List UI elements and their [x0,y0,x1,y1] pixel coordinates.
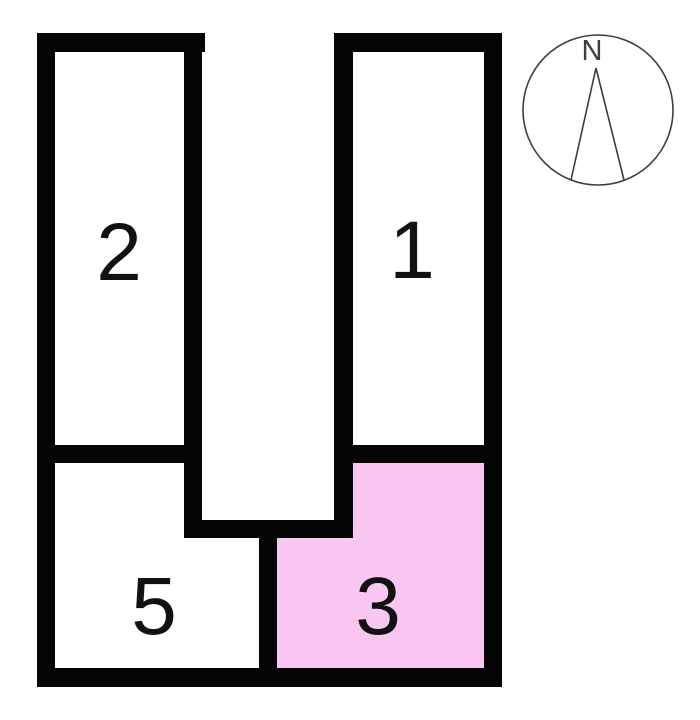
room-3-label: 3 [355,561,401,652]
room-5-label: 5 [131,561,177,652]
wall-outer-left [37,33,55,687]
wall-outer-right [484,33,502,687]
floor-plan-canvas: 2 1 5 3 N [0,0,700,720]
compass-north-label: N [582,35,603,67]
wall-room-1-3-divider [334,445,502,463]
room-1-label: 1 [389,205,435,296]
wall-top-room-2 [37,33,205,52]
wall-outer-bottom [37,668,502,687]
wall-top-room-1 [334,33,502,52]
room-2-label: 2 [96,207,142,298]
wall-room-5-3-divider [259,520,277,687]
wall-room-2-5-divider [37,445,202,463]
